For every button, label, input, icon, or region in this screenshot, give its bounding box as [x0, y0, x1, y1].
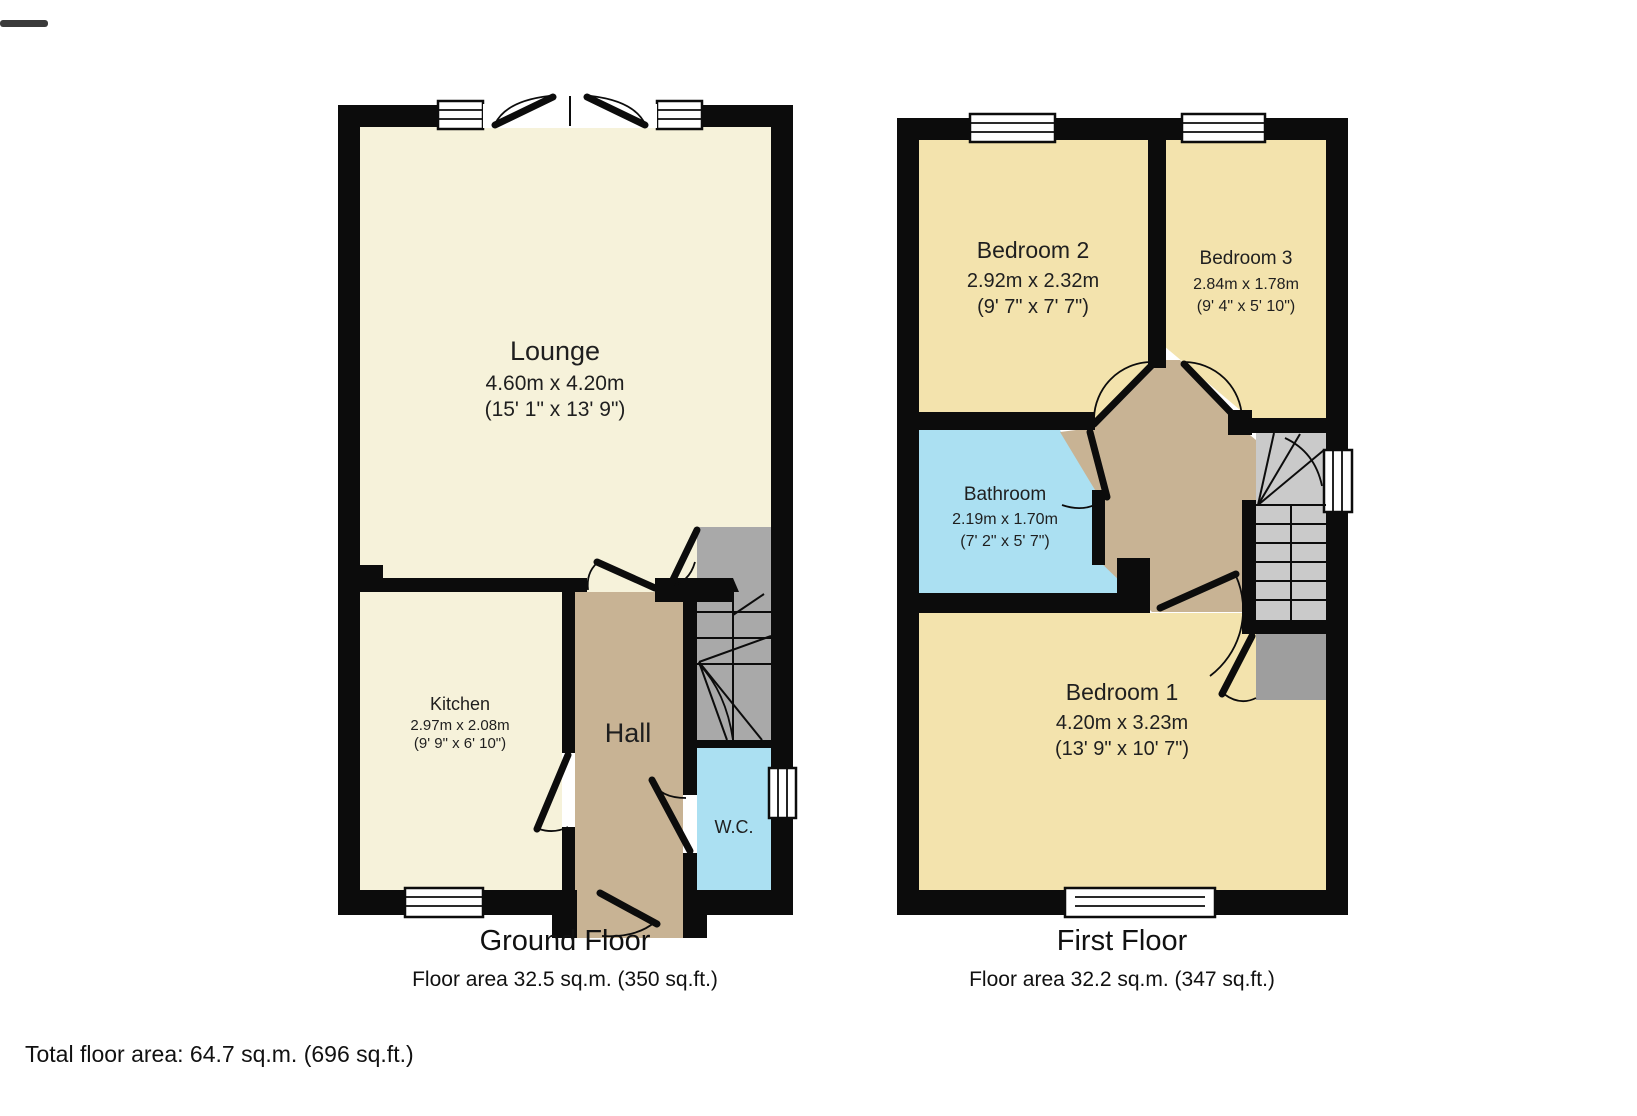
bedroom3-label: Bedroom 3 — [1200, 248, 1293, 269]
bedroom1-window — [1065, 888, 1215, 917]
stairs-cupboard — [1256, 634, 1326, 700]
wc-window — [769, 768, 796, 818]
kitchen-dims-ft: (9' 9" x 6' 10") — [414, 735, 506, 752]
kitchen-window — [405, 888, 483, 917]
bedroom2-dims-ft: (9' 7" x 7' 7") — [977, 296, 1089, 318]
bathroom-dims-m: 2.19m x 1.70m — [952, 511, 1058, 528]
bedroom2-dims-m: 2.92m x 2.32m — [967, 270, 1099, 292]
bedroom3-window — [1182, 114, 1265, 142]
bathroom-label: Bathroom — [964, 484, 1046, 505]
kitchen-dims-m: 2.97m x 2.08m — [410, 717, 509, 734]
ground-floor-caption: Ground Floor — [480, 925, 651, 957]
stairwell-window — [1324, 450, 1352, 512]
ground-floor-area: Floor area 32.5 sq.m. (350 sq.ft.) — [412, 968, 718, 991]
floorplan-canvas: Lounge 4.60m x 4.20m (15' 1" x 13' 9") K… — [0, 0, 1637, 1116]
first-floor-plan: Bedroom 2 2.92m x 2.32m (9' 7" x 7' 7") … — [897, 114, 1352, 917]
lounge-window-right — [657, 101, 702, 129]
bedroom1-dims-ft: (13' 9" x 10' 7") — [1055, 738, 1189, 760]
hall-label: Hall — [605, 718, 652, 748]
first-floor-area: Floor area 32.2 sq.m. (347 sq.ft.) — [969, 968, 1275, 991]
ground-floor-plan: Lounge 4.60m x 4.20m (15' 1" x 13' 9") K… — [338, 96, 796, 938]
kitchen-label: Kitchen — [430, 694, 490, 714]
bathroom-dims-ft: (7' 2" x 5' 7") — [960, 533, 1050, 550]
lounge-dims-ft: (15' 1" x 13' 9") — [485, 398, 626, 421]
lounge-dims-m: 4.60m x 4.20m — [486, 372, 625, 395]
first-floor-caption: First Floor — [1057, 925, 1188, 957]
lounge-label: Lounge — [510, 336, 600, 366]
wc-label: W.C. — [715, 817, 754, 837]
total-floor-area: Total floor area: 64.7 sq.m. (696 sq.ft.… — [25, 1041, 414, 1067]
bedroom2-window — [970, 114, 1055, 142]
bedroom1-dims-m: 4.20m x 3.23m — [1056, 712, 1188, 734]
patio-french-doors — [483, 96, 657, 128]
bedroom3-dims-m: 2.84m x 1.78m — [1193, 276, 1299, 293]
bedroom2-label: Bedroom 2 — [977, 237, 1090, 263]
lounge-window-left — [438, 101, 483, 129]
corner-dash — [0, 20, 48, 27]
floorplan-page: Lounge 4.60m x 4.20m (15' 1" x 13' 9") K… — [0, 0, 1637, 1116]
bedroom3-dims-ft: (9' 4" x 5' 10") — [1197, 298, 1295, 315]
hall-floor — [575, 592, 683, 938]
bedroom1-label: Bedroom 1 — [1066, 679, 1179, 705]
